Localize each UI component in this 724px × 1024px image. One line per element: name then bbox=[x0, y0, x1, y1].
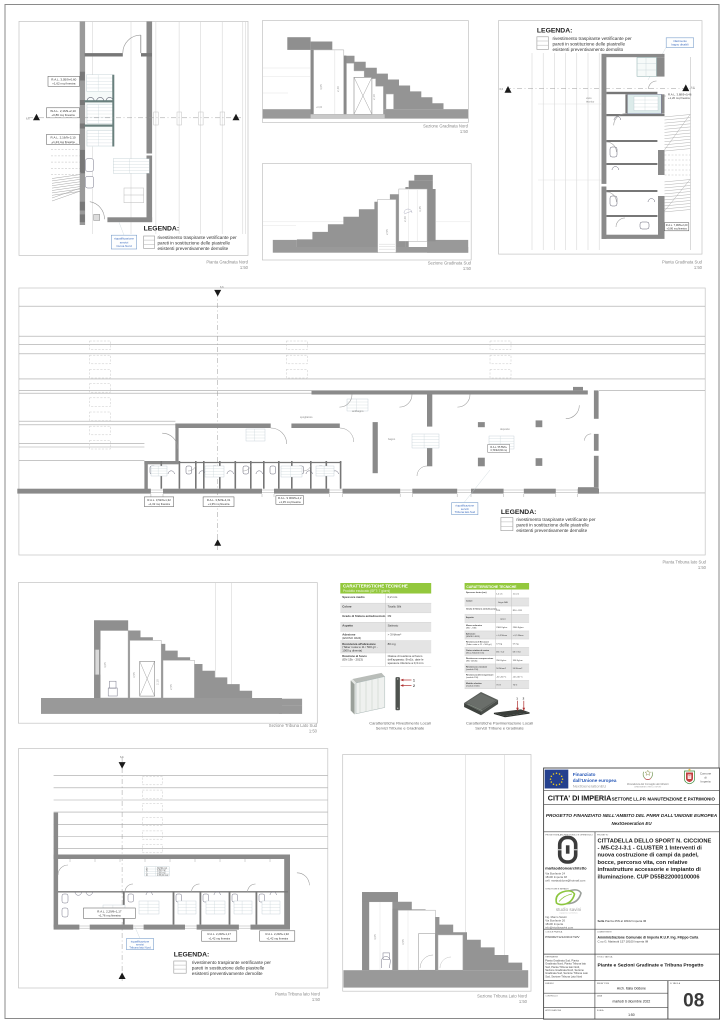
svg-text:4,05: 4,05 bbox=[103, 662, 107, 668]
svg-text:+1,42 mq finestra: +1,42 mq finestra bbox=[208, 937, 230, 941]
svg-text:6,6: 6,6 bbox=[220, 285, 224, 289]
svg-text:Arch. Italia Oddone: Arch. Italia Oddone bbox=[617, 987, 646, 991]
svg-text:rivestimento traspirante vetri: rivestimento traspirante vetrificante pe… bbox=[553, 36, 633, 41]
svg-text:+0,00: +0,00 bbox=[316, 106, 323, 109]
svg-text:LEGENDA:: LEGENDA: bbox=[174, 952, 210, 959]
svg-text:LEGENDA:: LEGENDA: bbox=[537, 27, 573, 34]
svg-text:1:50: 1:50 bbox=[698, 565, 707, 570]
svg-text:3,45: 3,45 bbox=[418, 206, 422, 212]
svg-text:R.A.L. 3,05/9+0,60: R.A.L. 3,05/9+0,60 bbox=[51, 77, 76, 81]
svg-text:Sella Piazza 25N al 18102 Impe: Sella Piazza 25N al 18102 Imperia IM bbox=[598, 919, 647, 923]
svg-text:EMESSO: EMESSO bbox=[545, 983, 554, 985]
svg-text:+1,62 mq finestra: +1,62 mq finestra bbox=[52, 82, 76, 86]
svg-text:deposito: deposito bbox=[500, 427, 510, 431]
svg-text:08: 08 bbox=[683, 991, 704, 1012]
svg-text:+1,32 mq finestra: +1,32 mq finestra bbox=[148, 502, 170, 506]
svg-text:6,6: 6,6 bbox=[26, 117, 30, 121]
svg-text:C.so G. Matteotti 157 18100 Im: C.so G. Matteotti 157 18100 Imperia IM bbox=[598, 940, 649, 944]
svg-text:W.A.L. 2,16/9+2,10: W.A.L. 2,16/9+2,10 bbox=[50, 109, 76, 113]
svg-text:rivestimento traspirante vetri: rivestimento traspirante vetrificante pe… bbox=[192, 960, 272, 965]
svg-text:martedì 6 dicembre 2022: martedì 6 dicembre 2022 bbox=[613, 1000, 651, 1004]
svg-text:2300 Kg/mc: 2300 Kg/mc bbox=[513, 627, 524, 629]
svg-text:+0,86 mq finestra: +0,86 mq finestra bbox=[51, 113, 75, 117]
svg-text:esistenti preventivamento demo: esistenti preventivamento demolito bbox=[553, 47, 624, 52]
svg-text:(ISO 10545): (ISO 10545) bbox=[466, 661, 478, 663]
svg-text:4,05: 4,05 bbox=[373, 934, 377, 940]
svg-text:martaoddonearchitetto: martaoddonearchitetto bbox=[545, 867, 587, 871]
svg-text:LEGENDA:: LEGENDA: bbox=[144, 226, 180, 233]
svg-text:tecnico: tecnico bbox=[586, 99, 595, 103]
svg-text:Prodotto essiccato (SFT: 7 gio: Prodotto essiccato (SFT: 7 giorni) bbox=[343, 589, 390, 593]
svg-text:R9: R9 bbox=[388, 614, 392, 618]
svg-text:(Taber ruota w 11 + 500 g/r): (Taber ruota w 11 + 500 g/r) bbox=[466, 643, 492, 646]
svg-text:opaco: opaco bbox=[500, 619, 507, 621]
svg-text:1:50: 1:50 bbox=[519, 999, 528, 1004]
svg-text:nuova costruzione di campi: nuova costruzione di campi da padel, bbox=[598, 853, 700, 859]
svg-text:antibagno: antibagno bbox=[352, 409, 364, 413]
svg-text:CODICE PRATICA: CODICE PRATICA bbox=[545, 931, 563, 934]
svg-text:2,10: 2,10 bbox=[372, 94, 376, 100]
svg-text:+1,20 mq finestra: +1,20 mq finestra bbox=[668, 96, 690, 100]
svg-text:2,55: 2,55 bbox=[385, 229, 389, 235]
svg-text:-50 +60 °C: -50 +60 °C bbox=[496, 676, 507, 678]
svg-text:Finanziato: Finanziato bbox=[573, 772, 596, 777]
svg-text:STRUTTURE E IMPIANTI: STRUTTURE E IMPIANTI bbox=[545, 887, 569, 890]
svg-text:-50 +60 °C: -50 +60 °C bbox=[513, 676, 524, 678]
svg-text:Grigio RAL: Grigio RAL bbox=[498, 601, 509, 604]
svg-text:(EN/ISO 4624): (EN/ISO 4624) bbox=[342, 636, 361, 640]
svg-text:50 N/mm2: 50 N/mm2 bbox=[496, 668, 506, 670]
svg-text:R.A.L. 2,29/9+1,17: R.A.L. 2,29/9+1,17 bbox=[207, 932, 231, 936]
svg-text:Presidenza del Consiglio dei M: Presidenza del Consiglio dei Ministri bbox=[627, 782, 669, 786]
svg-text:1:50: 1:50 bbox=[309, 729, 318, 734]
svg-text:CITTA' DI IMPERIA: CITTA' DI IMPERIA bbox=[548, 794, 611, 803]
svg-text:> 0,5 N/mm: > 0,5 N/mm bbox=[496, 634, 507, 637]
svg-text:rivestimento traspirante vetri: rivestimento traspirante vetrificante pe… bbox=[516, 517, 596, 522]
svg-text:1:50: 1:50 bbox=[463, 266, 472, 271]
svg-text:Grado di finitura antisdruccio: Grado di finitura antisdrucciolo bbox=[342, 614, 385, 618]
svg-text:N. TAVOLA: N. TAVOLA bbox=[670, 982, 681, 985]
svg-text:illuminazione. CUP D55B2: illuminazione. CUP D55B22000100006 bbox=[598, 874, 700, 880]
svg-text:0,2 mm: 0,2 mm bbox=[388, 595, 398, 599]
svg-text:57 mg: 57 mg bbox=[496, 643, 503, 645]
svg-text:+1,42 mq finestra: +1,42 mq finestra bbox=[266, 937, 288, 941]
svg-text:bagno: bagno bbox=[388, 437, 396, 441]
svg-text:pareti in sostituzione delle p: pareti in sostituzione delle piastrelle bbox=[192, 966, 265, 971]
svg-text:bocce, percorso vita,: bocce, percorso vita, con relative bbox=[598, 860, 688, 866]
svg-text:(modulo 1500): (modulo 1500) bbox=[466, 685, 480, 687]
svg-text:(modulo 150): (modulo 150) bbox=[466, 677, 479, 679]
svg-text:1:50: 1:50 bbox=[312, 997, 321, 1002]
svg-text:> 0,5 N/mm: > 0,5 N/mm bbox=[513, 634, 524, 637]
svg-text:(ISO - 748): (ISO - 748) bbox=[466, 628, 477, 630]
svg-text:NextGeneration EU: NextGeneration EU bbox=[611, 821, 652, 826]
svg-text:Servizi Tribune e Gradinate: Servizi Tribune e Gradinate bbox=[475, 726, 524, 731]
svg-text:+1,24 mq finestra: +1,24 mq finestra bbox=[51, 140, 75, 144]
svg-text:pareti in sostituzione delle p: pareti in sostituzione delle piastrelle bbox=[553, 42, 626, 47]
svg-text:esistenti preventivamente demo: esistenti preventivamente demolite bbox=[192, 971, 263, 976]
svg-text:Aspetto: Aspetto bbox=[342, 624, 353, 628]
svg-text:Colore: Colore bbox=[466, 599, 473, 602]
svg-text:kN > 6,0: kN > 6,0 bbox=[496, 651, 505, 654]
svg-text:(EN 13b - 2013): (EN 13b - 2013) bbox=[342, 658, 363, 662]
svg-text:350 Kg/cm: 350 Kg/cm bbox=[513, 660, 523, 662]
svg-text:(EN/ISO 4624): (EN/ISO 4624) bbox=[466, 636, 480, 638]
svg-text:bagno disabili: bagno disabili bbox=[671, 43, 688, 47]
svg-text:spessore inferiore a 0,3 mm: spessore inferiore a 0,3 mm bbox=[388, 661, 424, 665]
svg-text:PW00627121233C27/WV: PW00627121233C27/WV bbox=[545, 935, 579, 939]
svg-text:(modulo 150): (modulo 150) bbox=[466, 669, 479, 671]
svg-text:Colore: Colore bbox=[342, 604, 352, 608]
svg-text:Spessore lastra (cm): Spessore lastra (cm) bbox=[466, 591, 487, 594]
svg-text:Aspetto: Aspetto bbox=[466, 616, 474, 619]
svg-text:Sezione Tribuna Lato Sud: Sezione Tribuna Lato Sud bbox=[269, 723, 318, 728]
svg-text:+1,35 mq finestra: +1,35 mq finestra bbox=[208, 502, 230, 506]
svg-text:1,5 cm: 1,5 cm bbox=[513, 594, 520, 596]
svg-text:R10 - R11: R10 - R11 bbox=[513, 610, 523, 612]
svg-text:Pianta Gradinata Nord: Pianta Gradinata Nord bbox=[206, 260, 248, 265]
svg-text:Servizi Tribune e Gradinate: Servizi Tribune e Gradinate bbox=[376, 726, 425, 731]
svg-text:APPROVAZIONE: APPROVAZIONE bbox=[545, 1009, 561, 1012]
svg-text:CITTADELLA DELLO SPORT N. CICC: CITTADELLA DELLO SPORT N. CICCIONE bbox=[598, 838, 712, 844]
svg-text:pareti in sostituzione delle p: pareti in sostituzione delle piastrelle bbox=[516, 523, 589, 528]
svg-text:80 mg: 80 mg bbox=[388, 642, 396, 646]
svg-text:Pianta Gradinata Sud: Pianta Gradinata Sud bbox=[662, 260, 703, 265]
svg-text:CONTROLLO: CONTROLLO bbox=[545, 996, 558, 998]
svg-text:1000 g diventa): 1000 g diventa) bbox=[342, 648, 362, 652]
svg-text:Pianta Tribuna lato Sud: Pianta Tribuna lato Sud bbox=[662, 560, 706, 565]
svg-text:3,55: 3,55 bbox=[132, 672, 136, 678]
svg-text:DIPARTIMENTO PER LO SPORT: DIPARTIMENTO PER LO SPORT bbox=[634, 786, 662, 789]
svg-text:1,2 cm: 1,2 cm bbox=[496, 594, 503, 596]
svg-text:Sezione Tribuna Lato Nord: Sezione Tribuna Lato Nord bbox=[477, 994, 527, 999]
svg-text:2,40: 2,40 bbox=[336, 86, 340, 92]
svg-text:350 Kg/cm: 350 Kg/cm bbox=[496, 660, 506, 662]
svg-text:Curva Nord: Curva Nord bbox=[116, 244, 132, 248]
svg-text:Tribuna lato Sud: Tribuna lato Sud bbox=[455, 510, 476, 514]
svg-text:Sezione Gradinata Nord: Sezione Gradinata Nord bbox=[423, 124, 469, 129]
svg-text:spogliatoio: spogliatoio bbox=[300, 415, 313, 419]
svg-text:1:50: 1:50 bbox=[628, 1013, 635, 1017]
svg-text:2,40: 2,40 bbox=[403, 216, 407, 222]
svg-text:esistenti preventivamente demo: esistenti preventivamente demolite bbox=[516, 528, 587, 533]
svg-text:Sezione Gradinata Sud: Sezione Gradinata Sud bbox=[428, 261, 472, 266]
svg-text:pareti in sostituzione delle p: pareti in sostituzione delle piastrelle bbox=[158, 241, 231, 246]
svg-text:CARATTERISTICHE TECNICHE: CARATTERISTICHE TECNICHE bbox=[343, 584, 408, 589]
svg-text:PROGETTO FINANZIATO NELL'AMBIT: PROGETTO FINANZIATO NELL'AMBITO DEL PNRR… bbox=[546, 813, 718, 818]
svg-text:+1,35 mq finestra: +1,35 mq finestra bbox=[279, 500, 301, 504]
svg-text:cell: martaoddone@hotmail.com: cell: martaoddone@hotmail.com bbox=[545, 878, 586, 882]
svg-text:DATA: DATA bbox=[597, 995, 603, 998]
svg-text:1:50: 1:50 bbox=[460, 129, 469, 134]
svg-text:- M5-C2-I-3.1 - CLUSTER 1 Inte: - M5-C2-I-3.1 - CLUSTER 1 Interventi di bbox=[598, 846, 703, 852]
svg-text:2,55: 2,55 bbox=[169, 684, 173, 690]
svg-text:R.A.L. 7,38/9+2,20: R.A.L. 7,38/9+2,20 bbox=[666, 223, 688, 227]
svg-text:R.A.L. 2,16/9+2,10: R.A.L. 2,16/9+2,10 bbox=[50, 135, 75, 139]
svg-text:info@studiosavini.com: info@studiosavini.com bbox=[545, 925, 574, 929]
svg-text:Piante e Sezioni Gradinate e T: Piante e Sezioni Gradinate e Tribuna Pro… bbox=[598, 962, 704, 968]
svg-text:57 mg: 57 mg bbox=[513, 643, 520, 645]
svg-text:50 N/mm2: 50 N/mm2 bbox=[513, 668, 523, 670]
svg-text:6,6: 6,6 bbox=[691, 86, 695, 90]
svg-text:6,6: 6,6 bbox=[120, 755, 124, 759]
svg-text:esistenti preventivamente demo: esistenti preventivamente demolite bbox=[158, 246, 229, 251]
svg-text:0,70/9x9,60 mq: 0,70/9x9,60 mq bbox=[490, 449, 507, 452]
svg-text:Satinato: Satinato bbox=[388, 624, 399, 628]
svg-text:1:50: 1:50 bbox=[694, 265, 703, 270]
svg-text:2300 Kg/mc: 2300 Kg/mc bbox=[496, 627, 507, 629]
svg-text:2,10: 2,10 bbox=[156, 679, 160, 685]
svg-text:LEGENDA:: LEGENDA: bbox=[501, 509, 537, 516]
svg-text:SCALA: SCALA bbox=[597, 1009, 604, 1012]
svg-text:PROGETTO: PROGETTO bbox=[597, 834, 609, 836]
svg-text:Totally Silk: Totally Silk bbox=[388, 604, 402, 608]
svg-text:+0,86 mq finestra: +0,86 mq finestra bbox=[667, 227, 688, 231]
svg-text:rivestimento traspirante vetri: rivestimento traspirante vetrificante pe… bbox=[158, 235, 238, 240]
svg-text:> 3 N/mm²: > 3 N/mm² bbox=[388, 633, 402, 637]
svg-text:6,6: 6,6 bbox=[500, 87, 504, 91]
svg-text:1: 1 bbox=[413, 679, 415, 683]
svg-text:70 G: 70 G bbox=[513, 685, 518, 687]
svg-text:1:50: 1:50 bbox=[240, 265, 249, 270]
svg-text:D: D bbox=[146, 874, 148, 877]
svg-text:178,60 m2: 178,60 m2 bbox=[157, 874, 169, 877]
svg-text:- SETTORE LL.PP. MANUTENZIONE: - SETTORE LL.PP. MANUTENZIONE E PATRIMON… bbox=[609, 796, 715, 801]
svg-text:CARATTERISTICHE TECNICHE: CARATTERISTICHE TECNICHE bbox=[466, 585, 517, 589]
svg-text:Tribuna lato Nord: Tribuna lato Nord bbox=[129, 946, 151, 950]
svg-text:R.A.L. 2,29/9+1,92: R.A.L. 2,29/9+1,92 bbox=[265, 932, 289, 936]
svg-text:infrastrutture accessorie e: infrastrutture accessorie e impianto di bbox=[598, 867, 702, 873]
svg-text:(Krl p 200x200 mm): (Krl p 200x200 mm) bbox=[466, 651, 485, 654]
svg-text:Spessore medio: Spessore medio bbox=[342, 595, 365, 599]
svg-text:70 G: 70 G bbox=[496, 685, 501, 687]
svg-text:REDATTORE: REDATTORE bbox=[597, 982, 610, 985]
svg-text:Grado di finitura antisdruccio: Grado di finitura antisdrucciolo bbox=[466, 608, 498, 611]
svg-text:kN > 8,0: kN > 8,0 bbox=[513, 651, 522, 654]
svg-text:4,05: 4,05 bbox=[319, 84, 323, 90]
svg-text:TITOLO TAVOLA: TITOLO TAVOLA bbox=[597, 956, 613, 959]
svg-text:dall'Unione europea: dall'Unione europea bbox=[573, 778, 617, 783]
svg-text:RIFERIMENTI: RIFERIMENTI bbox=[545, 957, 558, 959]
svg-text:COMMITTENTE: COMMITTENTE bbox=[597, 932, 612, 934]
svg-text:NextGenerationEU: NextGenerationEU bbox=[573, 783, 607, 788]
svg-text:2: 2 bbox=[413, 684, 415, 688]
svg-text:Imperia: Imperia bbox=[700, 780, 710, 784]
svg-text:studio savini: studio savini bbox=[556, 907, 581, 912]
svg-text:Sud, Sezione Tribuna Lato Nord: Sud, Sezione Tribuna Lato Nord bbox=[545, 974, 582, 978]
svg-text:+1,76 mq finestra: +1,76 mq finestra bbox=[98, 914, 121, 918]
svg-text:3,55: 3,55 bbox=[401, 939, 405, 945]
svg-text:Pianta Tribuna lato Nord: Pianta Tribuna lato Nord bbox=[275, 992, 321, 997]
